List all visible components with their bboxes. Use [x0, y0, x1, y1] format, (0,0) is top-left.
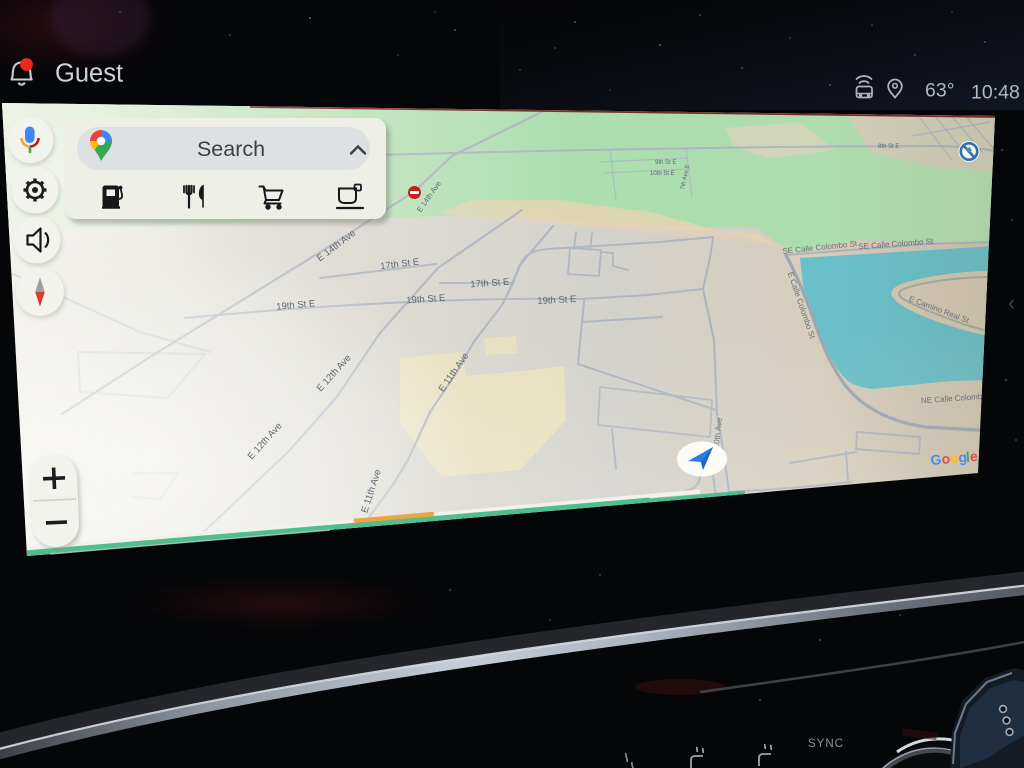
- svg-text:Search: Search: [197, 137, 265, 161]
- svg-text:10th St E: 10th St E: [650, 171, 675, 177]
- svg-text:63°: 63°: [925, 80, 955, 102]
- svg-text:Guest: Guest: [55, 60, 123, 88]
- svg-text:SYNC: SYNC: [808, 738, 844, 750]
- svg-text:9th St E: 9th St E: [655, 160, 676, 166]
- svg-text:10:48: 10:48: [971, 82, 1020, 104]
- svg-text:19th St E: 19th St E: [537, 294, 577, 307]
- svg-text:‹: ‹: [1008, 290, 1015, 315]
- svg-text:8th St E: 8th St E: [878, 144, 899, 150]
